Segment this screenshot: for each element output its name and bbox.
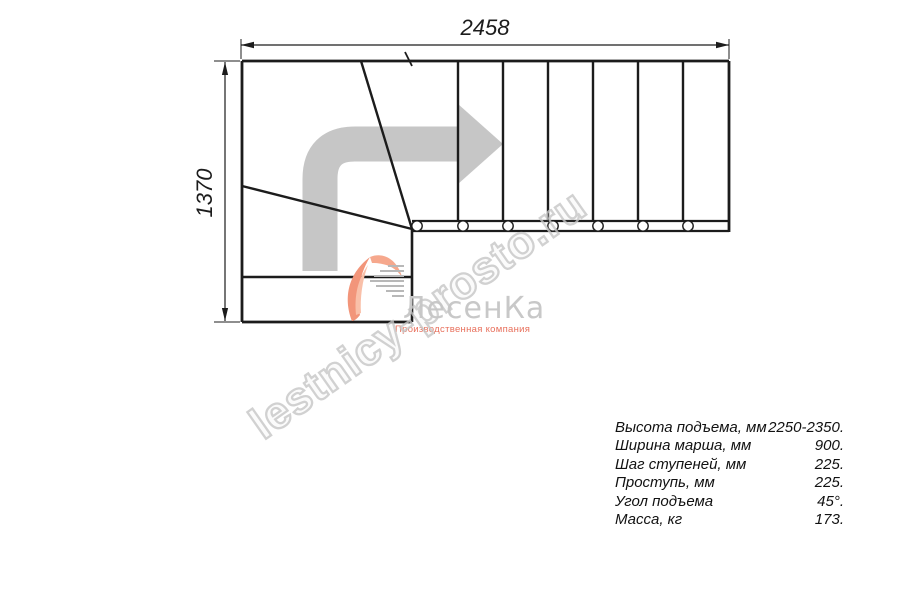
- baluster-circle: [683, 221, 693, 231]
- specs-table: Высота подъема, мм 2250-2350. Ширина мар…: [615, 419, 844, 529]
- spec-row: Шаг ступеней, мм 225.: [615, 456, 844, 474]
- baluster-circle: [458, 221, 468, 231]
- spec-row: Угол подъема 45°.: [615, 493, 844, 511]
- spec-value: 45°.: [817, 493, 844, 511]
- spec-row: Ширина марша, мм 900.: [615, 437, 844, 455]
- spec-row: Масса, кг 173.: [615, 511, 844, 529]
- top-dimension-label: 2458: [425, 15, 545, 41]
- spec-label: Шаг ступеней, мм: [615, 456, 746, 474]
- spec-value: 225.: [815, 456, 844, 474]
- staircase-drawing-page: 2458 1370 ЛесенКа Производственная компа…: [0, 0, 900, 600]
- baluster-circle: [638, 221, 648, 231]
- spec-label: Проступь, мм: [615, 474, 715, 492]
- spec-value: 173.: [815, 511, 844, 529]
- spec-row: Высота подъема, мм 2250-2350.: [615, 419, 844, 437]
- spec-value: 2250-2350.: [768, 419, 844, 437]
- dimension-line-top: [241, 39, 729, 59]
- spec-label: Высота подъема, мм: [615, 419, 767, 437]
- spec-row: Проступь, мм 225.: [615, 474, 844, 492]
- spec-label: Угол подъема: [615, 493, 713, 511]
- spec-value: 225.: [815, 474, 844, 492]
- spec-label: Ширина марша, мм: [615, 437, 751, 455]
- spec-label: Масса, кг: [615, 511, 682, 529]
- spec-value: 900.: [815, 437, 844, 455]
- baluster-circle: [412, 221, 422, 231]
- left-dimension-label: 1370: [192, 148, 218, 238]
- flight-division-tick: [405, 52, 412, 66]
